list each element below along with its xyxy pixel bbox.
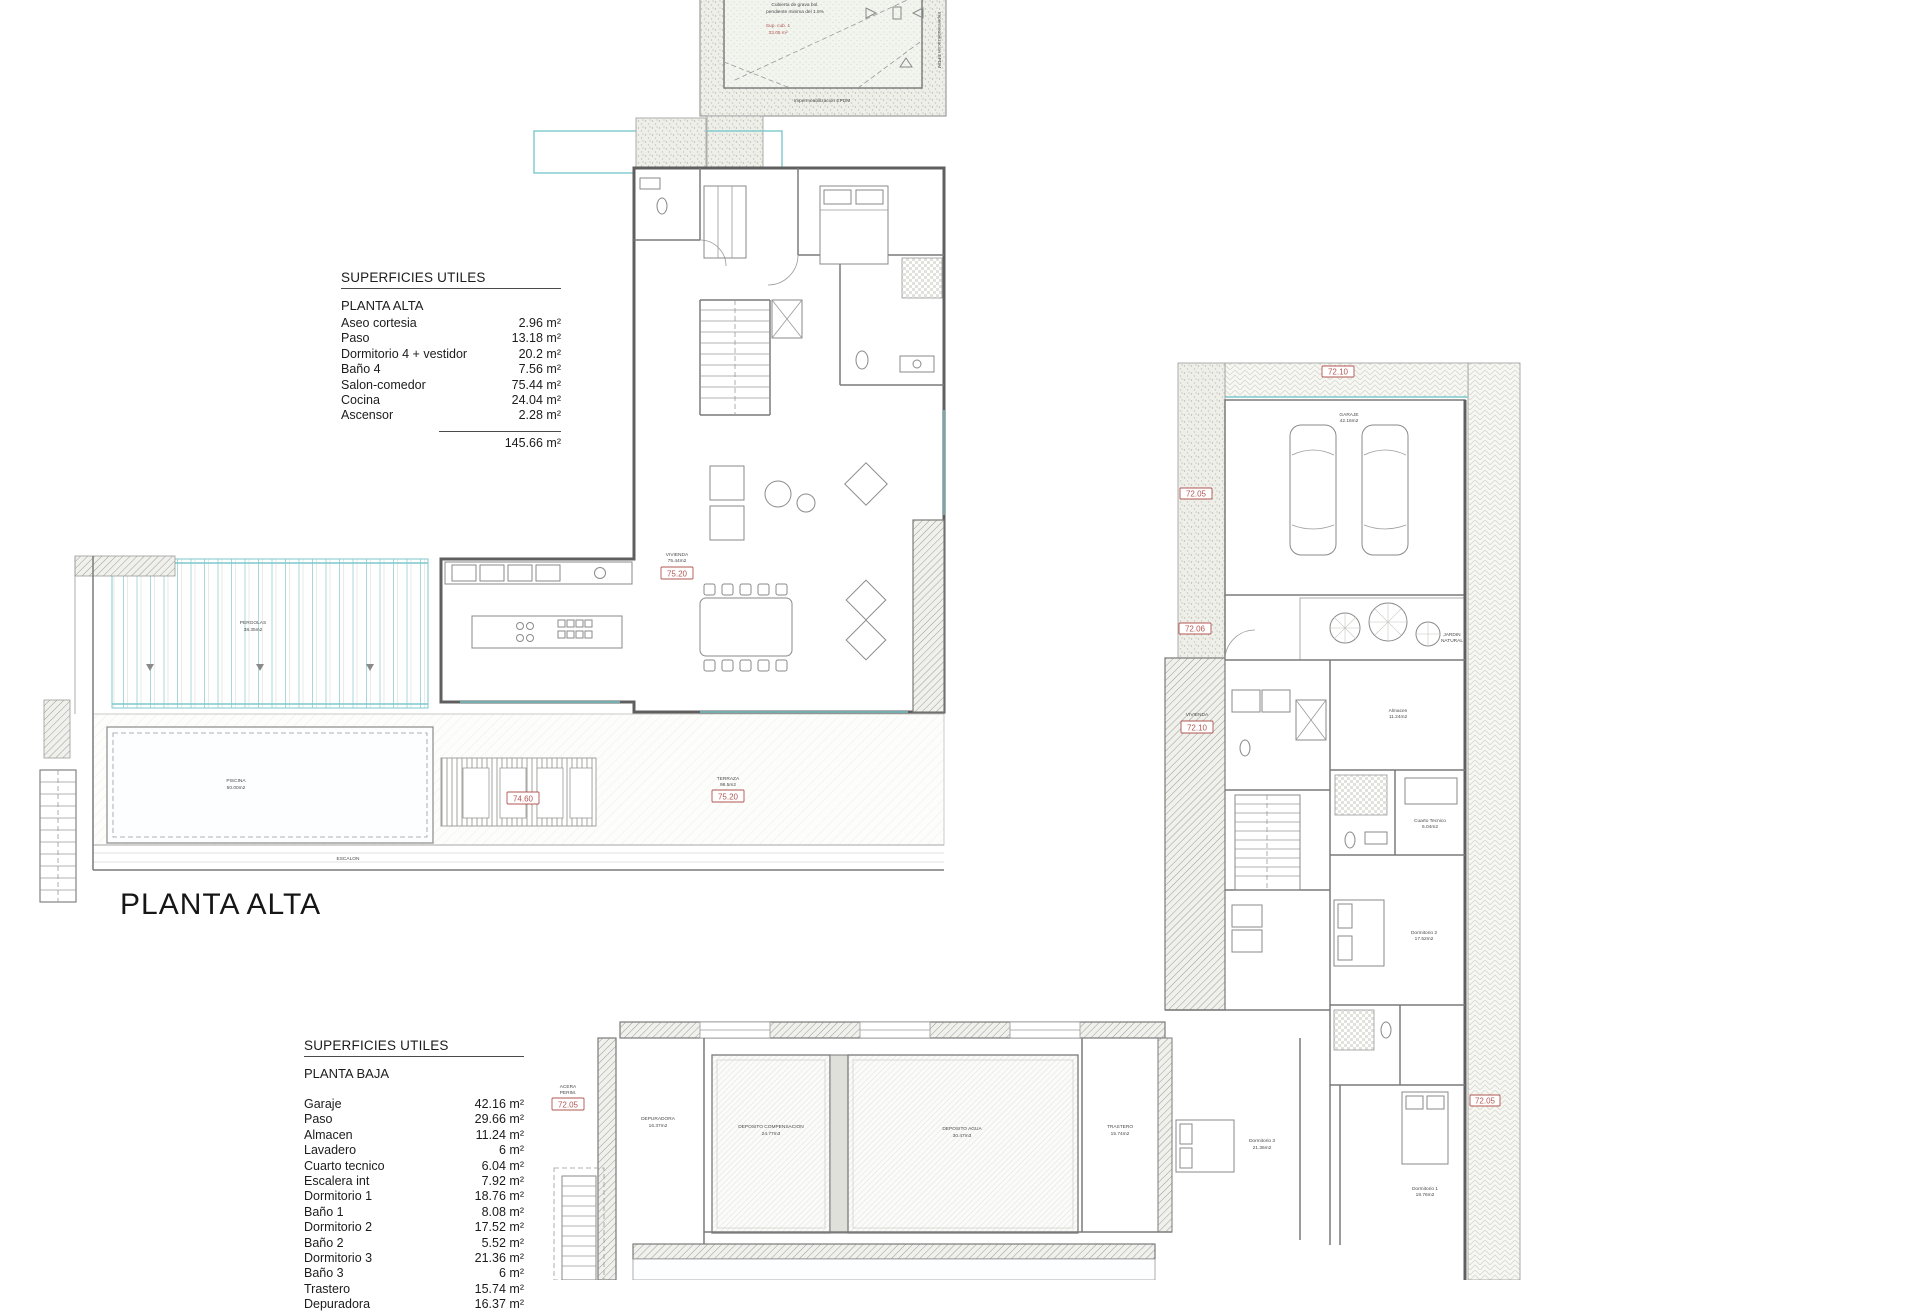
level-vivienda-baja: VIVIENDA 72.10 bbox=[1181, 712, 1213, 733]
svg-text:18.76m2: 18.76m2 bbox=[1416, 1192, 1435, 1198]
escalon-label: ESCALON bbox=[337, 856, 360, 862]
roof-connector bbox=[707, 116, 763, 174]
table-row: Baño 47.56 m² bbox=[341, 362, 561, 377]
roof-sup-value: 33.05 m² bbox=[769, 30, 788, 36]
table-row: Paso13.18 m² bbox=[341, 331, 561, 346]
table-row: Aseo cortesia2.96 m² bbox=[341, 316, 561, 331]
svg-text:Cuarto Tecnico: Cuarto Tecnico bbox=[1414, 818, 1446, 824]
table-header: SUPERFICIES UTILES bbox=[341, 270, 561, 289]
table-row: Depuradora16.37 m² bbox=[304, 1297, 524, 1312]
svg-text:72.05: 72.05 bbox=[1186, 490, 1207, 499]
level-garaje-top: 72.10 bbox=[1322, 366, 1354, 377]
svg-text:72.05: 72.05 bbox=[558, 1101, 579, 1110]
svg-text:TERRAZA: TERRAZA bbox=[717, 776, 740, 782]
svg-text:TRASTERO: TRASTERO bbox=[1107, 1124, 1133, 1130]
balcony-wall bbox=[913, 520, 944, 712]
laundry-cabinets bbox=[1232, 905, 1262, 952]
table-row: Dormitorio 118.76 m² bbox=[304, 1189, 524, 1204]
table-row: Ascensor2.28 m² bbox=[341, 408, 561, 423]
roof-note-1: Cubierta de grava bol. bbox=[771, 2, 818, 8]
table-row: Salon-comedor75.44 m² bbox=[341, 378, 561, 393]
bed-dormitorio-4 bbox=[820, 186, 888, 264]
table-row: Baño 25.52 m² bbox=[304, 1236, 524, 1251]
table-row: Garaje42.16 m² bbox=[304, 1097, 524, 1112]
svg-text:72.05: 72.05 bbox=[1475, 1097, 1496, 1106]
table-header: SUPERFICIES UTILES bbox=[304, 1038, 524, 1057]
svg-text:NATURAL: NATURAL bbox=[1441, 638, 1463, 644]
svg-text:Almacen: Almacen bbox=[1389, 708, 1408, 714]
pergolas-label: PERGOLAS bbox=[240, 620, 266, 626]
svg-text:75.20: 75.20 bbox=[667, 570, 688, 579]
jardin-label: JARDIN bbox=[1443, 632, 1461, 638]
floorplan-drawing: Cubierta de grava bol. pendiente minima … bbox=[0, 0, 1920, 1280]
level-entry-b: 72.06 bbox=[1179, 623, 1211, 634]
table-row: Dormitorio 4 + vestidor20.2 m² bbox=[341, 347, 561, 362]
table-subtitle: PLANTA ALTA bbox=[341, 298, 561, 313]
pergola: PERGOLAS 38.35m2 bbox=[112, 559, 428, 708]
garage: GARAJE 42.16m2 bbox=[1225, 400, 1465, 595]
exterior-ladder-stair bbox=[554, 1168, 604, 1280]
roof-plan: Cubierta de grava bol. pendiente minima … bbox=[700, 0, 946, 174]
svg-text:ACERA: ACERA bbox=[560, 1084, 577, 1090]
svg-text:50.00m2: 50.00m2 bbox=[227, 785, 246, 791]
svg-text:11.24m2: 11.24m2 bbox=[1389, 714, 1408, 720]
svg-text:DEPOSITO COMPENSACION: DEPOSITO COMPENSACION bbox=[738, 1124, 804, 1130]
svg-text:75.44m2: 75.44m2 bbox=[668, 558, 687, 564]
planta-alta-plan: ESCALON PISCINA 50.00m2 PERGOLAS 38.35m2 bbox=[40, 118, 944, 902]
level-entry-a: 72.05 bbox=[1180, 488, 1212, 499]
level-sunbed: 74.60 bbox=[507, 792, 539, 804]
table-subtitle: PLANTA BAJA bbox=[304, 1066, 524, 1081]
garaje-label: GARAJE bbox=[1339, 412, 1358, 418]
table-total: 145.66 m² bbox=[341, 436, 561, 451]
svg-text:Dormitorio 3: Dormitorio 3 bbox=[1249, 1138, 1275, 1144]
trastero-label: TRASTERO 15.74m2 bbox=[1107, 1124, 1133, 1137]
table-row: Baño 18.08 m² bbox=[304, 1205, 524, 1220]
planta-alta-title: PLANTA ALTA bbox=[120, 888, 321, 922]
acera-label: ACERA PERIM. 72.05 bbox=[552, 1084, 584, 1110]
roof-side-note: Impermeabilizacion EPDM bbox=[936, 12, 942, 69]
depuradora-label: DEPURADORA 16.37m2 bbox=[641, 1116, 676, 1129]
piscina-label: PISCINA bbox=[226, 778, 246, 784]
svg-text:74.60: 74.60 bbox=[513, 795, 534, 804]
svg-text:VIVIENDA: VIVIENDA bbox=[666, 552, 689, 558]
svg-text:Dormitorio 1: Dormitorio 1 bbox=[1412, 1186, 1438, 1192]
cuarto-tecnico: Cuarto Tecnico 6.04m2 bbox=[1405, 778, 1457, 830]
table-row: Escalera int7.92 m² bbox=[304, 1174, 524, 1189]
svg-text:75.20: 75.20 bbox=[718, 793, 739, 802]
deposito-agua: DEPOSITO AGUA 30.47m3 bbox=[848, 1055, 1078, 1233]
stair-baja bbox=[1235, 795, 1300, 890]
table-row: Cuarto tecnico6.04 m² bbox=[304, 1159, 524, 1174]
total-divider bbox=[439, 431, 561, 432]
svg-text:21.36m2: 21.36m2 bbox=[1253, 1145, 1272, 1151]
table-row: Dormitorio 321.36 m² bbox=[304, 1251, 524, 1266]
exterior-stairs bbox=[40, 700, 76, 902]
svg-text:15.74m2: 15.74m2 bbox=[1111, 1131, 1130, 1137]
bano-1 bbox=[1334, 1010, 1391, 1050]
svg-text:Dormitorio 2: Dormitorio 2 bbox=[1411, 930, 1437, 936]
hall-fixtures bbox=[1232, 690, 1326, 756]
table-row: Cocina24.04 m² bbox=[341, 393, 561, 408]
deposito-compensacion: DEPOSITO COMPENSACION 24.77m3 bbox=[712, 1055, 830, 1233]
svg-text:DEPOSITO AGUA: DEPOSITO AGUA bbox=[942, 1126, 982, 1132]
svg-text:98.5m2: 98.5m2 bbox=[720, 782, 736, 788]
table-row: Dormitorio 217.52 m² bbox=[304, 1220, 524, 1235]
superficies-planta-alta: SUPERFICIES UTILES PLANTA ALTA Aseo cort… bbox=[341, 270, 561, 451]
svg-text:42.16m2: 42.16m2 bbox=[1340, 418, 1359, 424]
table-row: Paso29.66 m² bbox=[304, 1112, 524, 1127]
svg-text:72.06: 72.06 bbox=[1185, 625, 1206, 634]
svg-text:PERIM.: PERIM. bbox=[560, 1090, 577, 1096]
level-side-strip: 72.05 bbox=[1470, 1095, 1500, 1106]
roof-bottom-note: Impermeabilizacion EPDM bbox=[794, 98, 851, 104]
svg-text:30.47m3: 30.47m3 bbox=[953, 1133, 972, 1139]
superficies-planta-baja: SUPERFICIES UTILES PLANTA BAJA Garaje42.… bbox=[304, 1038, 524, 1313]
almacen-room: Almacen 11.24m2 bbox=[1389, 708, 1408, 720]
patio-jardin: JARDIN NATURAL bbox=[1300, 598, 1465, 660]
table-row: Trastero15.74 m² bbox=[304, 1282, 524, 1297]
car-2 bbox=[1362, 425, 1408, 555]
top-windows bbox=[700, 1022, 1080, 1038]
svg-text:6.04m2: 6.04m2 bbox=[1422, 824, 1438, 830]
dormitorio-2: Dormitorio 2 17.52m2 bbox=[1334, 900, 1437, 966]
dormitorio-1: Dormitorio 1 18.76m2 bbox=[1402, 1092, 1448, 1198]
pool: PISCINA 50.00m2 bbox=[107, 727, 433, 843]
roof-note-2: pendiente minima del 1.5% bbox=[766, 9, 825, 15]
dormitorio-3: Dormitorio 3 21.36m2 bbox=[1176, 1120, 1275, 1172]
svg-text:72.10: 72.10 bbox=[1328, 368, 1349, 377]
table-row: Lavadero6 m² bbox=[304, 1143, 524, 1158]
car-1 bbox=[1290, 425, 1336, 555]
svg-text:24.77m3: 24.77m3 bbox=[762, 1131, 781, 1137]
svg-text:16.37m2: 16.37m2 bbox=[649, 1123, 668, 1129]
svg-text:DEPURADORA: DEPURADORA bbox=[641, 1116, 676, 1122]
table-row: Almacen11.24 m² bbox=[304, 1128, 524, 1143]
svg-text:72.10: 72.10 bbox=[1187, 724, 1208, 733]
planta-baja-bottom-plan: ACERA PERIM. 72.05 DEPURADORA 16.37m2 DE… bbox=[552, 1022, 1340, 1280]
svg-text:17.52m2: 17.52m2 bbox=[1415, 936, 1434, 942]
bano-2 bbox=[1335, 775, 1387, 848]
svg-text:VIVIENDA: VIVIENDA bbox=[1186, 712, 1209, 718]
roof-sup-label: Sup. cub. 1 bbox=[766, 23, 791, 29]
svg-text:38.35m2: 38.35m2 bbox=[244, 627, 263, 633]
